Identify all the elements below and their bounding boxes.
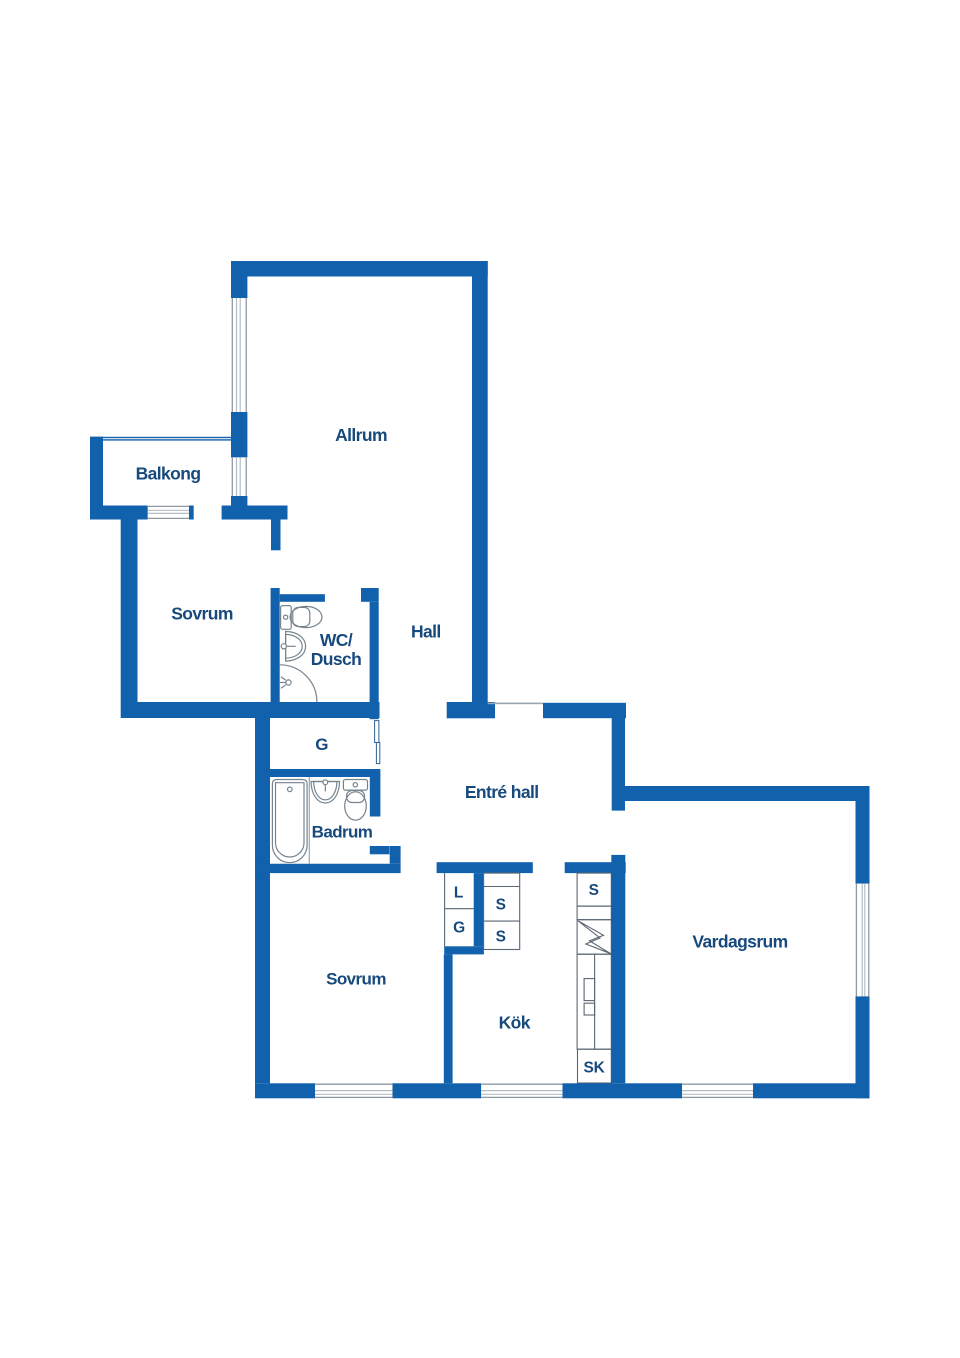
svg-text:Badrum: Badrum: [312, 822, 373, 841]
svg-text:S: S: [496, 897, 506, 914]
svg-text:L: L: [454, 884, 463, 901]
svg-text:Hall: Hall: [411, 622, 441, 642]
svg-text:Entré hall: Entré hall: [465, 782, 539, 802]
svg-text:Allrum: Allrum: [335, 425, 387, 445]
svg-text:G: G: [315, 735, 328, 754]
svg-text:Sovrum: Sovrum: [171, 604, 233, 624]
svg-text:S: S: [496, 929, 506, 946]
svg-text:Dusch: Dusch: [311, 649, 361, 669]
svg-text:Vardagsrum: Vardagsrum: [692, 932, 787, 952]
svg-text:S: S: [589, 882, 599, 899]
svg-text:Balkong: Balkong: [136, 464, 201, 484]
svg-text:WC/: WC/: [320, 630, 353, 650]
svg-text:Kök: Kök: [499, 1012, 531, 1032]
svg-text:Sovrum: Sovrum: [326, 969, 386, 988]
svg-text:SK: SK: [584, 1060, 606, 1077]
svg-text:G: G: [453, 920, 465, 937]
